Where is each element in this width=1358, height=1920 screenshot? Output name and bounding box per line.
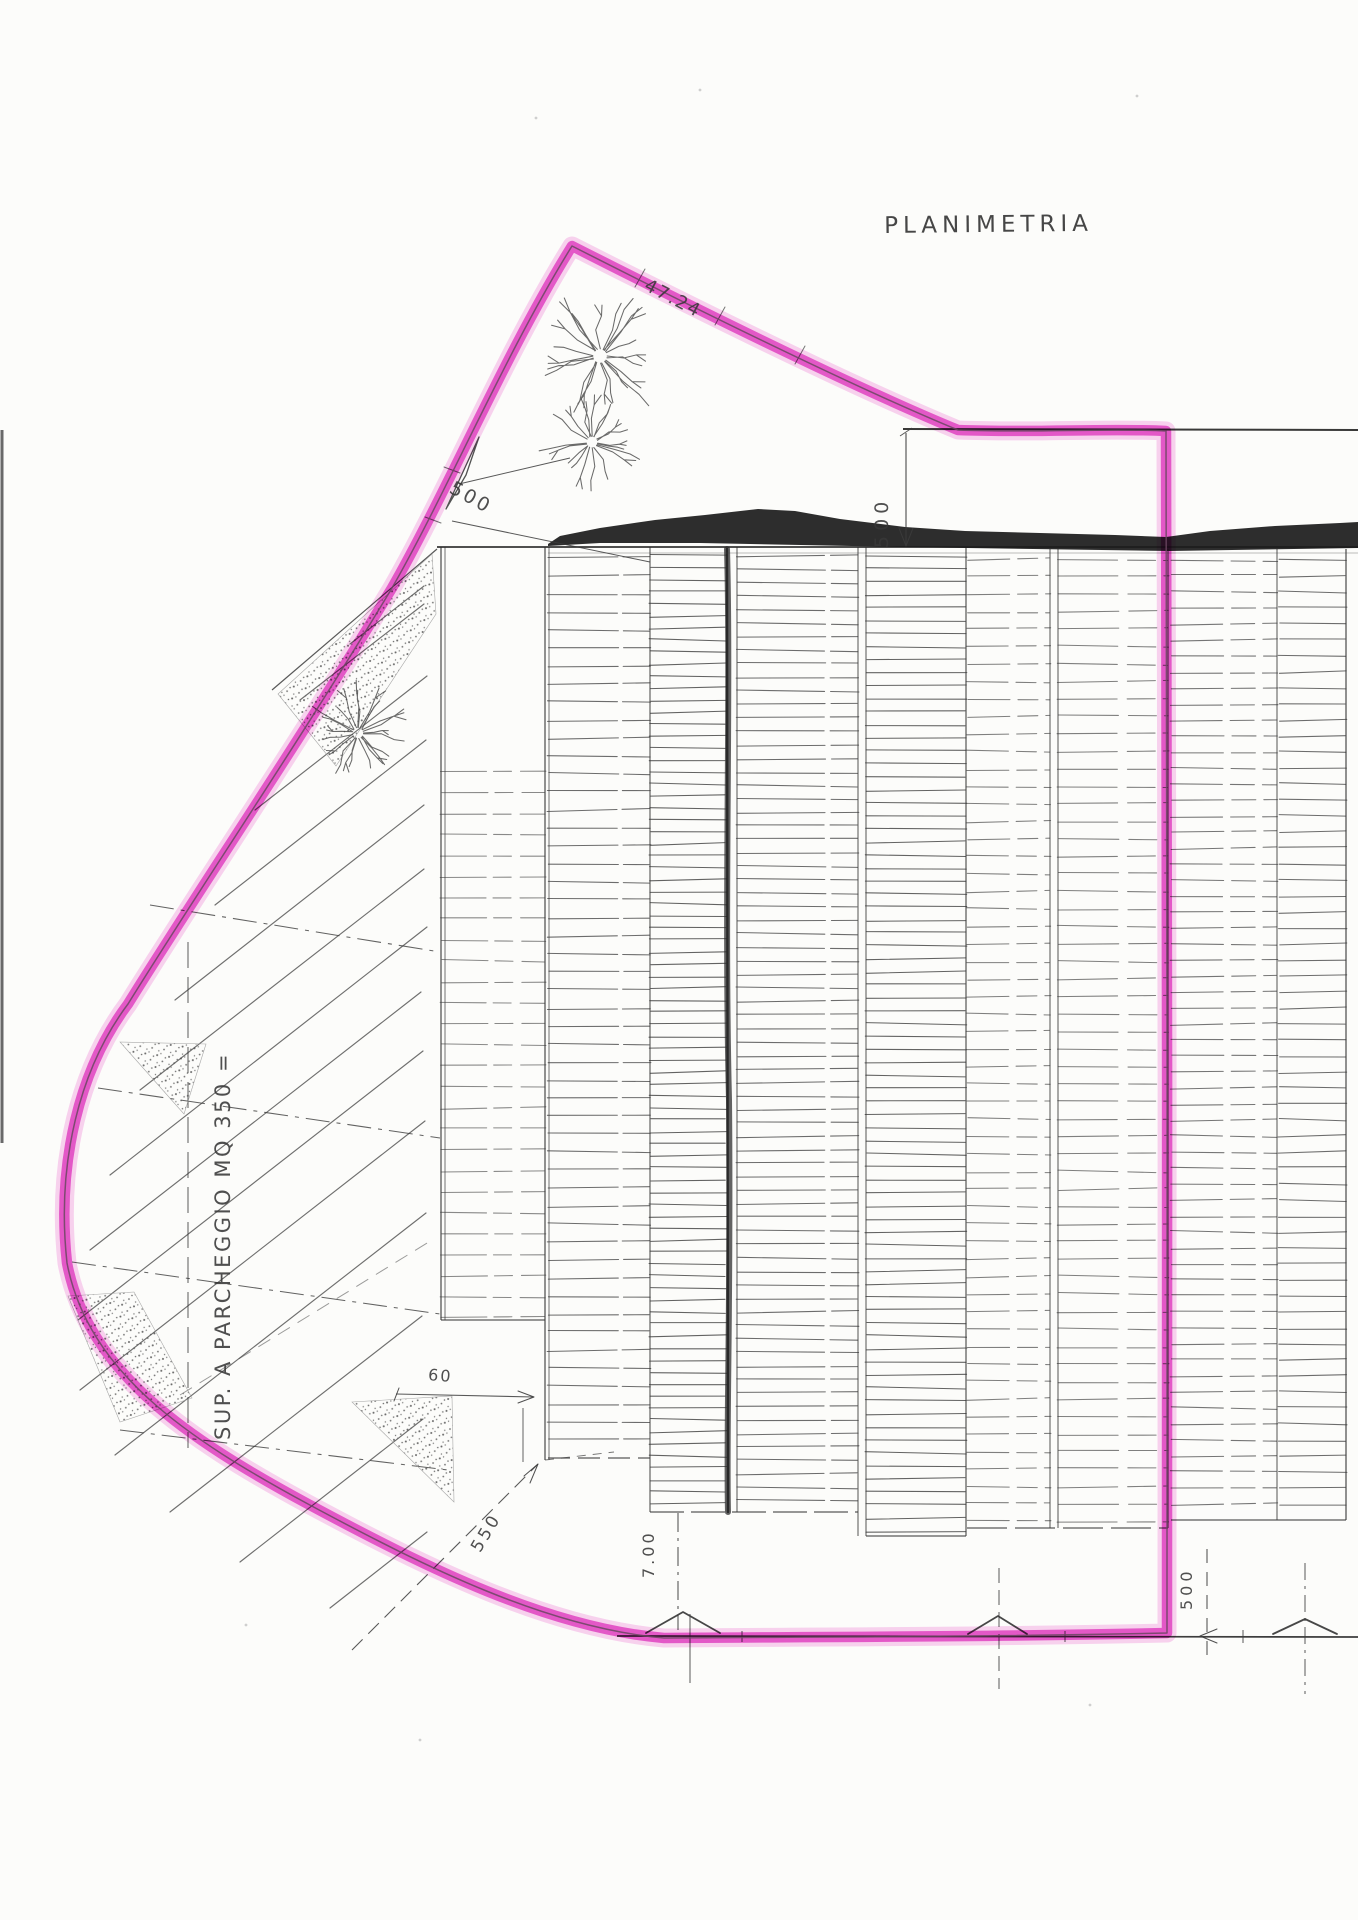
drawing-title: PLANIMETRIA — [884, 212, 1093, 239]
dim-street-setback-label: 500 — [1178, 1567, 1196, 1610]
warehouse-building — [437, 429, 1358, 1536]
site-plan-drawing — [0, 0, 1358, 1920]
parking-area-linework — [72, 549, 448, 1608]
scanned-site-plan-page: PLANIMETRIA SUP. A PARCHEGGIO MQ 350 = 4… — [0, 0, 1358, 1920]
scan-artifacts — [2, 89, 1138, 1742]
gravel-stipple-patches — [68, 554, 454, 1502]
parking-area-label: SUP. A PARCHEGGIO MQ 350 = — [212, 1052, 235, 1440]
dim-building-gap-label: 60 — [427, 1366, 453, 1386]
dimension-linework — [352, 269, 1358, 1694]
dim-roof-setback-label: 500 — [872, 497, 893, 548]
dim-entrance-width-label: 7.00 — [640, 1530, 658, 1578]
